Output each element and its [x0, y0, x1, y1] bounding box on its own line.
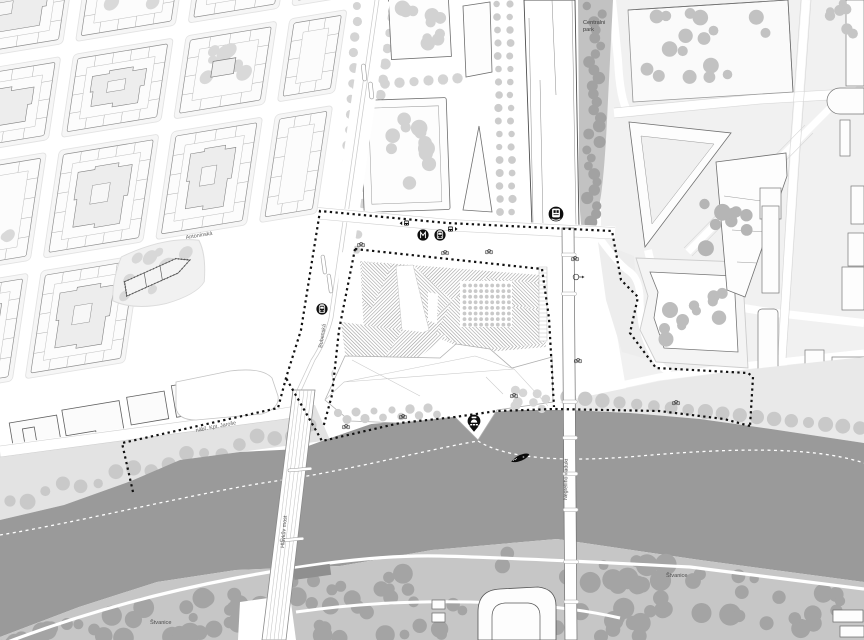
svg-text:Centralni: Centralni: [583, 20, 605, 26]
svg-text:Negrelliho viadukt: Negrelliho viadukt: [563, 458, 570, 500]
svg-text:Štvanice: Štvanice: [150, 619, 171, 626]
svg-text:Štvanice: Štvanice: [666, 572, 687, 579]
svg-text:park: park: [583, 27, 594, 33]
